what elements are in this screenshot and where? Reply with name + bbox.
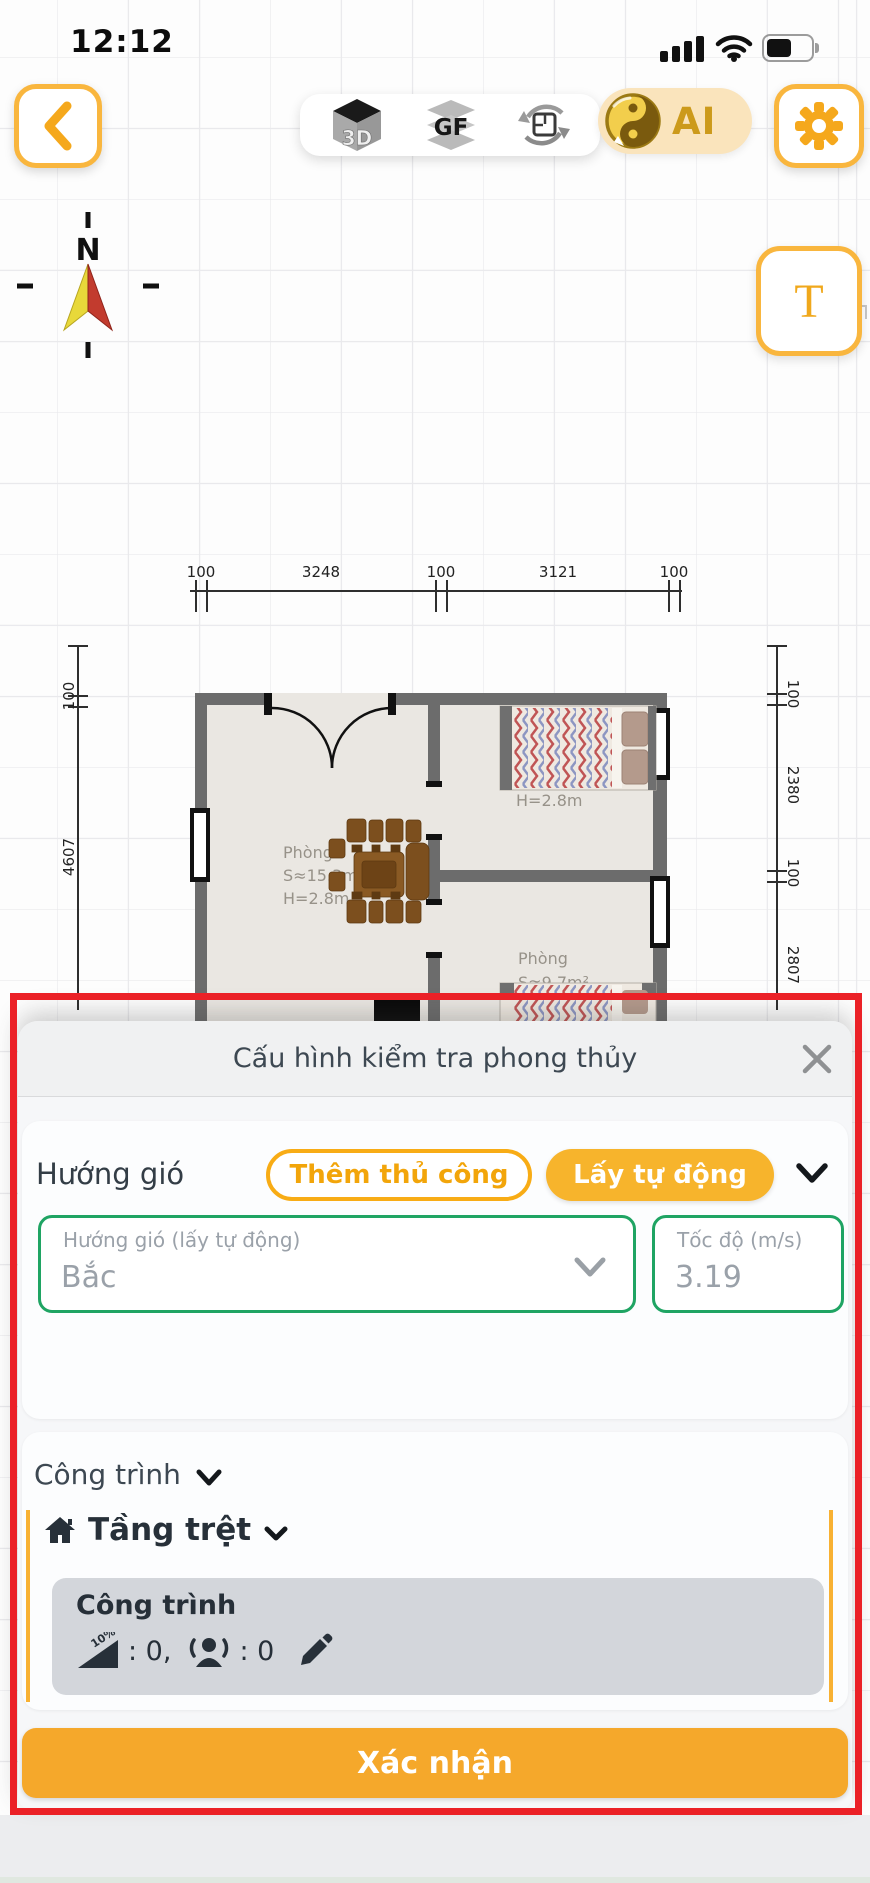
- app-screen: 100 3248 100 3121 100 100 4607 100 2380 …: [0, 0, 870, 1883]
- bottom-background: [0, 1815, 870, 1883]
- building-item-title: Công trình: [76, 1590, 236, 1621]
- dim-label: 100: [60, 682, 78, 711]
- dim-label: 100: [784, 680, 802, 709]
- floorplan-canvas[interactable]: 100 3248 100 3121 100 100 4607 100 2380 …: [0, 0, 870, 1080]
- wind-direction-value: Bắc: [61, 1260, 116, 1295]
- close-icon[interactable]: [798, 1040, 836, 1078]
- chevron-down-icon: [573, 1256, 607, 1280]
- people-stat: : 0: [239, 1636, 274, 1667]
- text-tool-button[interactable]: T: [756, 246, 862, 356]
- room-label: Phòng: [518, 949, 568, 968]
- add-manual-button[interactable]: Thêm thủ công: [266, 1149, 532, 1201]
- home-icon: [44, 1515, 76, 1545]
- floor-row[interactable]: Tầng trệt: [44, 1512, 289, 1548]
- svg-text:GF: GF: [434, 115, 469, 141]
- dim-label: 100: [187, 563, 216, 581]
- wind-direction-select[interactable]: Hướng gió (lấy tự động) Bắc: [38, 1215, 636, 1313]
- settings-button[interactable]: [774, 84, 864, 168]
- slope-stat: : 0,: [128, 1636, 171, 1667]
- sheet-header: Cấu hình kiểm tra phong thủy: [18, 1021, 852, 1097]
- text-tool-label: T: [794, 274, 823, 329]
- dim-label: 2807: [784, 946, 802, 984]
- room-label: H=2.8m: [283, 889, 349, 908]
- floor-label: Tầng trệt: [88, 1512, 251, 1548]
- gear-icon: [793, 100, 845, 152]
- building-section-header[interactable]: Công trình: [34, 1458, 223, 1491]
- dim-label: 3121: [539, 563, 577, 581]
- building-item[interactable]: Công trình 10% : 0, : 0: [52, 1578, 824, 1695]
- dim-label: 3248: [302, 563, 340, 581]
- dim-label: 2380: [784, 766, 802, 804]
- dimension-top: [190, 580, 682, 612]
- chevron-down-icon: [263, 1525, 289, 1543]
- wind-speed-label: Tốc độ (m/s): [677, 1228, 802, 1252]
- sheet-title: Cấu hình kiểm tra phong thủy: [18, 1021, 852, 1097]
- chevron-left-icon: [36, 98, 80, 154]
- ai-button[interactable]: AI: [598, 88, 752, 154]
- compass: N: [0, 190, 176, 370]
- compass-north-label: N: [75, 233, 100, 268]
- wind-speed-field[interactable]: Tốc độ (m/s) 3.19: [652, 1215, 844, 1313]
- slope-icon: 10%: [76, 1632, 120, 1670]
- bottom-edge-strip: [0, 1877, 870, 1883]
- people-icon: [187, 1633, 231, 1669]
- room-label: S≈15.3m²: [283, 866, 364, 885]
- feng-shui-config-sheet: Cấu hình kiểm tra phong thủy Hướng gió T…: [18, 1021, 852, 1809]
- wind-section-label: Hướng gió: [36, 1157, 184, 1191]
- dim-label: 4607: [60, 838, 78, 876]
- auto-fetch-button[interactable]: Lấy tự động: [546, 1149, 774, 1201]
- floor-block: Tầng trệt Công trình 10% : 0,: [26, 1510, 833, 1702]
- dimension-right: [767, 645, 787, 1010]
- compass-needle: [64, 264, 112, 330]
- building-section-label: Công trình: [34, 1458, 181, 1491]
- ai-button-label: AI: [672, 100, 716, 143]
- wind-collapse-chevron-icon[interactable]: [794, 1161, 830, 1187]
- svg-text:3D: 3D: [342, 126, 373, 150]
- tv-block: [374, 1000, 420, 1022]
- view-toolbar: 3D GF: [300, 94, 600, 156]
- bed-top: [500, 706, 656, 790]
- room-label: Phòng: [283, 843, 333, 862]
- room-label: H=2.8m: [516, 791, 582, 810]
- dim-label: 100: [660, 563, 689, 581]
- edit-pencil-icon[interactable]: [296, 1632, 334, 1670]
- confirm-button[interactable]: Xác nhận: [22, 1728, 848, 1798]
- back-button[interactable]: [14, 84, 102, 168]
- rotate-plan-icon[interactable]: [516, 97, 572, 153]
- wind-direction-label: Hướng gió (lấy tự động): [63, 1228, 300, 1252]
- view-3d-icon[interactable]: 3D: [328, 97, 386, 153]
- dim-label: 100: [427, 563, 456, 581]
- dim-label: 100: [784, 859, 802, 888]
- building-section-card: Công trình Tầng trệt Công: [22, 1432, 848, 1710]
- chevron-down-icon: [195, 1468, 223, 1488]
- view-gf-icon[interactable]: GF: [422, 98, 480, 152]
- building-item-stats: 10% : 0, : 0: [76, 1632, 334, 1670]
- yin-yang-icon: [604, 92, 662, 150]
- wind-speed-value: 3.19: [675, 1260, 742, 1295]
- wind-section-card: Hướng gió Thêm thủ công Lấy tự động Hướn…: [22, 1121, 848, 1419]
